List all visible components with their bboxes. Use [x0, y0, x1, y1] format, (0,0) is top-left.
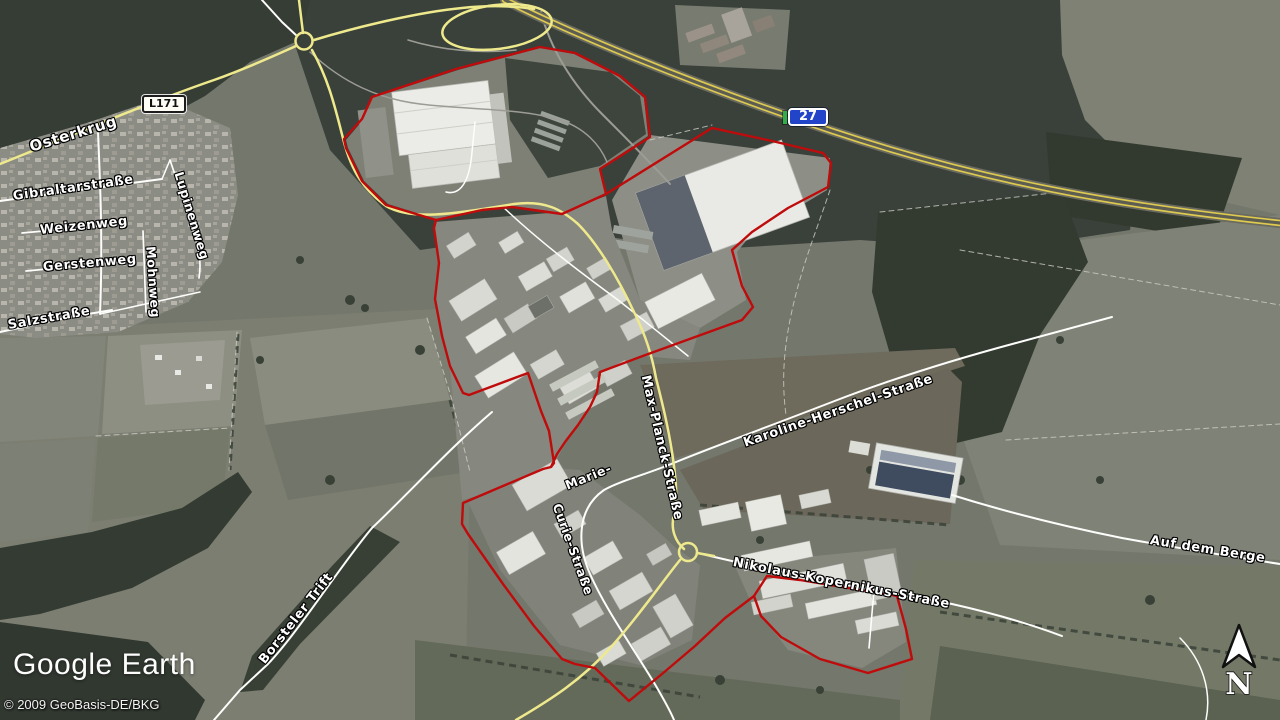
north-label: N: [1225, 667, 1252, 702]
badge-green-stripe: [783, 111, 787, 124]
badge-27-label: 27: [788, 108, 828, 126]
satellite-imagery: [0, 0, 1280, 720]
copyright-text: © 2009 GeoBasis-DE/BKG: [4, 697, 160, 712]
road-badge-l171: L171: [142, 95, 186, 113]
north-arrow-icon: [1223, 625, 1255, 667]
google-earth-logo: Google Earth: [13, 648, 196, 682]
north-arrow[interactable]: N: [1216, 622, 1262, 702]
highway-badge-27: 27: [783, 108, 828, 126]
map-viewport[interactable]: Osterkrug Gibraltarstraße Weizenweg Gers…: [0, 0, 1280, 720]
